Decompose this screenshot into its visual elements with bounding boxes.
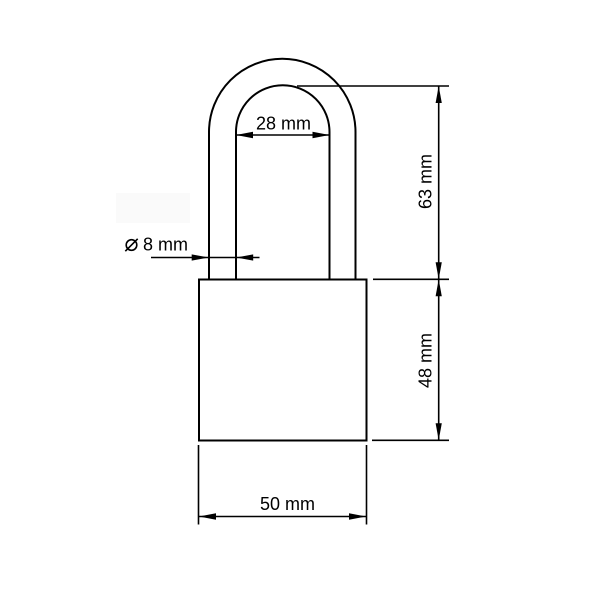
- svg-text:8 mm: 8 mm: [143, 235, 188, 255]
- svg-text:63 mm: 63 mm: [416, 154, 436, 209]
- svg-text:28 mm: 28 mm: [256, 114, 311, 134]
- svg-text:50 mm: 50 mm: [260, 494, 315, 514]
- svg-text:48 mm: 48 mm: [416, 333, 436, 388]
